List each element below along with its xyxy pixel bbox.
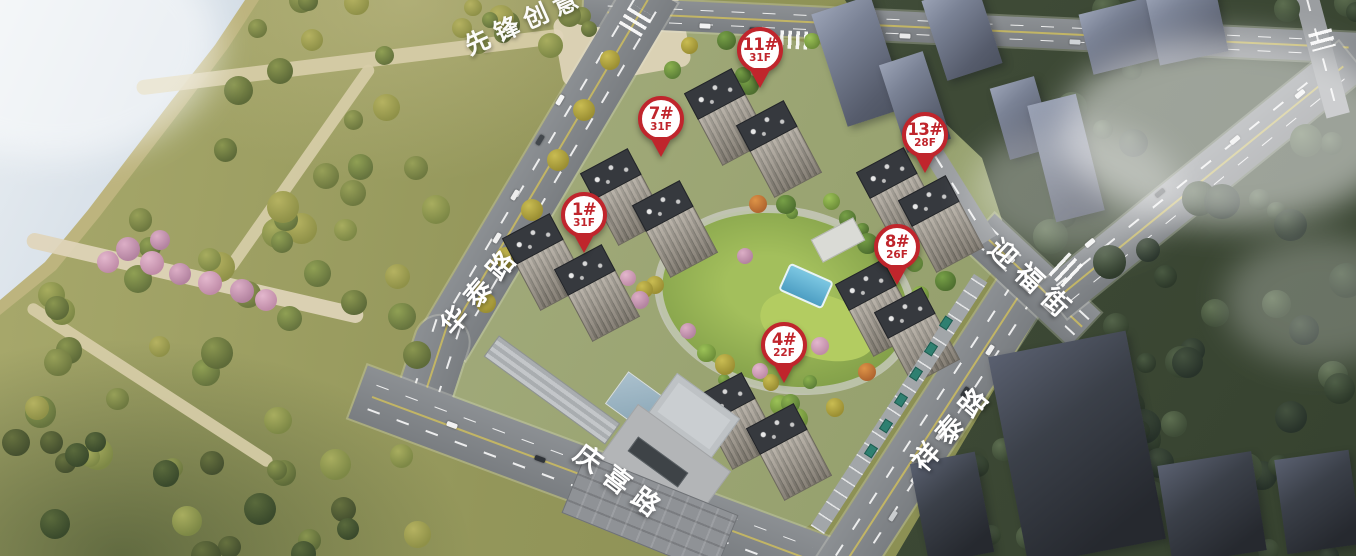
context-building: [1274, 450, 1356, 555]
garden-tree: [826, 398, 844, 416]
marker-building-number: 4#: [772, 331, 796, 348]
park-tree: [201, 337, 233, 369]
park-tree: [464, 0, 482, 16]
marker-pointer-tail: [749, 68, 771, 88]
park-tree: [200, 451, 224, 475]
city-tree: [1093, 120, 1112, 139]
park-tree: [341, 290, 366, 315]
street-tree: [600, 50, 620, 70]
garden-tree: [776, 195, 795, 214]
marker-pointer-tail: [914, 153, 936, 173]
city-tree: [1274, 209, 1307, 242]
park-tree: [404, 156, 428, 180]
car: [1069, 39, 1080, 45]
street-tree: [573, 99, 595, 121]
marker-floor-count: 26F: [886, 250, 908, 261]
city-tree: [1290, 124, 1322, 156]
marker-floor-count: 31F: [749, 53, 771, 64]
marker-circle: 7#31F: [638, 96, 684, 142]
park-tree: [538, 33, 563, 58]
blossom-tree: [150, 230, 170, 250]
context-building: [1157, 451, 1266, 556]
city-tree: [1136, 353, 1156, 373]
building-marker-7[interactable]: 7#31F: [638, 96, 684, 157]
park-tree: [172, 506, 202, 536]
marker-pointer-tail: [573, 233, 595, 253]
blossom-tree: [169, 263, 191, 285]
marker-pointer-tail: [886, 265, 908, 285]
blossom-tree: [811, 337, 829, 355]
park-tree: [198, 248, 221, 271]
park-tree: [390, 444, 413, 467]
garden-tree: [715, 354, 736, 375]
building-marker-8[interactable]: 8#26F: [874, 224, 920, 285]
city-tree: [1154, 265, 1177, 288]
park-tree: [301, 29, 323, 51]
marker-floor-count: 22F: [773, 348, 795, 359]
building-marker-1[interactable]: 1#31F: [561, 192, 607, 253]
autumn-tree: [858, 363, 876, 381]
park-tree: [40, 431, 63, 454]
park-tree: [348, 154, 374, 180]
marker-pointer-tail: [773, 363, 795, 383]
marker-building-number: 1#: [572, 201, 596, 218]
blossom-tree: [116, 237, 140, 261]
park-tree: [106, 388, 128, 410]
park-tree: [344, 110, 364, 130]
marker-circle: 13#28F: [902, 112, 948, 158]
park-tree: [404, 521, 430, 547]
marker-building-number: 8#: [885, 233, 909, 250]
garden-tree: [681, 37, 698, 54]
marker-building-number: 7#: [649, 105, 673, 122]
street-tree: [547, 149, 569, 171]
blossom-tree: [230, 279, 254, 303]
marker-floor-count: 31F: [650, 122, 672, 133]
park-tree: [304, 260, 331, 287]
car: [699, 23, 710, 29]
marker-circle: 1#31F: [561, 192, 607, 238]
park-tree: [334, 219, 357, 242]
park-tree: [153, 460, 179, 486]
garden-tree: [935, 271, 955, 291]
city-tree: [1262, 290, 1290, 318]
blossom-tree: [255, 289, 277, 311]
park-tree: [85, 432, 105, 452]
city-tree: [1161, 411, 1186, 436]
park-tree: [340, 180, 366, 206]
city-tree: [1274, 0, 1299, 22]
park-tree: [218, 536, 240, 556]
building-marker-13[interactable]: 13#28F: [902, 112, 948, 173]
park-tree: [373, 94, 400, 121]
blossom-tree: [97, 251, 119, 273]
park-tree: [337, 518, 359, 540]
park-tree: [248, 19, 267, 38]
blossom-tree: [198, 271, 222, 295]
blossom-tree: [140, 251, 164, 275]
city-tree: [1289, 315, 1318, 344]
park-tree: [129, 208, 152, 231]
city-tree: [1204, 184, 1239, 219]
park-tree: [277, 306, 302, 331]
marker-circle: 8#26F: [874, 224, 920, 270]
marker-pointer-tail: [650, 137, 672, 157]
car: [899, 33, 910, 39]
park-tree: [25, 396, 49, 420]
park-tree: [267, 58, 293, 84]
city-tree: [1321, 132, 1344, 155]
park-tree: [320, 449, 351, 480]
park-tree: [388, 303, 416, 331]
city-tree: [1093, 245, 1126, 278]
garden-tree: [697, 344, 715, 362]
garden-tree: [664, 61, 681, 78]
park-tree: [65, 443, 89, 467]
park-tree: [44, 349, 71, 376]
park-tree: [45, 296, 68, 319]
marker-circle: 4#22F: [761, 322, 807, 368]
marker-floor-count: 31F: [573, 218, 595, 229]
park-tree: [264, 407, 292, 435]
marker-circle: 11#31F: [737, 27, 783, 73]
city-tree: [1119, 129, 1148, 158]
park-tree: [267, 191, 299, 223]
building-marker-11[interactable]: 11#31F: [737, 27, 783, 88]
blossom-tree: [737, 248, 753, 264]
marker-floor-count: 28F: [914, 138, 936, 149]
autumn-tree: [749, 195, 767, 213]
building-marker-4[interactable]: 4#22F: [761, 322, 807, 383]
city-tree: [1275, 401, 1307, 433]
park-tree: [271, 231, 293, 253]
park-tree: [422, 195, 451, 224]
aerial-masterplan: 华泰路庆喜路祥泰路迎福街先锋创意 1#31F7#31F11#31F13#28F8…: [0, 0, 1356, 556]
blossom-tree: [680, 323, 696, 339]
city-tree: [1033, 219, 1068, 254]
marker-building-number: 13#: [907, 121, 942, 138]
city-tree: [1136, 238, 1160, 262]
marker-building-number: 11#: [742, 36, 777, 53]
